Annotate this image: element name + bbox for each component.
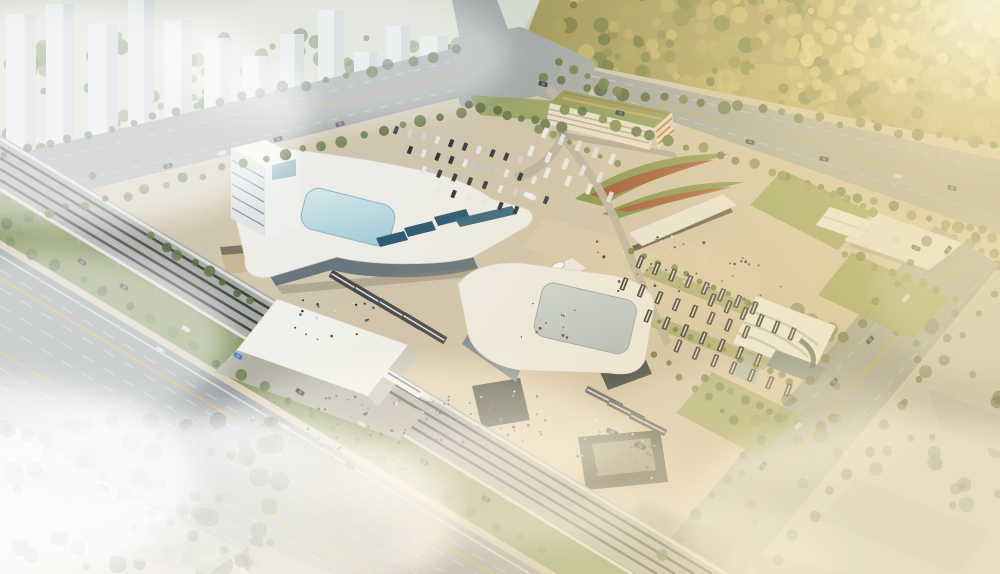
rendering-canvas [0, 0, 1000, 574]
aerial-rendering-transit-hub [0, 0, 1000, 574]
atmosphere [0, 0, 1000, 574]
